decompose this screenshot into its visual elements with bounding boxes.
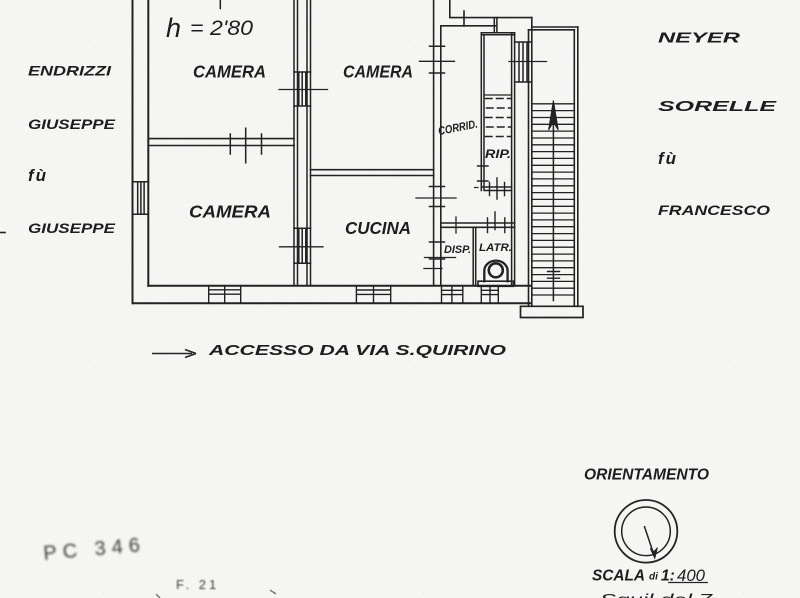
svg-text:GIUSEPPE: GIUSEPPE bbox=[28, 116, 116, 132]
svg-text:Squil del 7: Squil del 7 bbox=[600, 592, 714, 598]
svg-text:ACCESSO DA VIA S.QUIRINO: ACCESSO DA VIA S.QUIRINO bbox=[208, 342, 507, 359]
svg-text:CUCINA: CUCINA bbox=[345, 218, 411, 238]
svg-text:SCALA: SCALA bbox=[592, 568, 645, 585]
svg-text:F. 21: F. 21 bbox=[176, 577, 219, 592]
svg-text:fù: fù bbox=[28, 166, 48, 185]
svg-text:LATR.: LATR. bbox=[479, 242, 512, 254]
svg-text:di: di bbox=[649, 572, 658, 583]
svg-text:ENDRIZZI: ENDRIZZI bbox=[28, 63, 112, 79]
svg-text:RIP.: RIP. bbox=[485, 149, 511, 161]
svg-text:FRANCESCO: FRANCESCO bbox=[658, 202, 770, 218]
svg-text:CAMERA: CAMERA bbox=[189, 202, 271, 222]
svg-text:GIUSEPPE: GIUSEPPE bbox=[28, 220, 116, 236]
svg-text:= 2'80: = 2'80 bbox=[190, 17, 253, 40]
svg-text:DISP.: DISP. bbox=[444, 244, 471, 256]
svg-text:h: h bbox=[166, 13, 181, 43]
svg-text:SORELLE: SORELLE bbox=[658, 98, 778, 115]
svg-text:CAMERA: CAMERA bbox=[343, 62, 413, 82]
svg-text:fù: fù bbox=[658, 149, 678, 168]
svg-text:CAMERA: CAMERA bbox=[193, 62, 266, 82]
svg-text:ORIENTAMENTO: ORIENTAMENTO bbox=[584, 467, 710, 484]
svg-text:NEYER: NEYER bbox=[658, 30, 740, 47]
